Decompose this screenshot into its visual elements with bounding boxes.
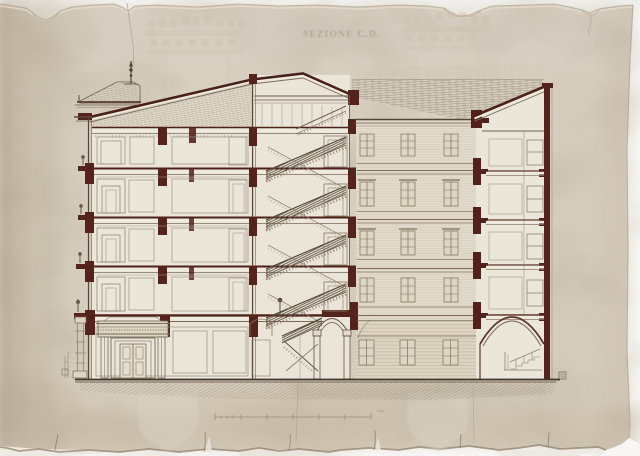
svg-text:SEZIONE C.D.: SEZIONE C.D. [303, 30, 381, 40]
